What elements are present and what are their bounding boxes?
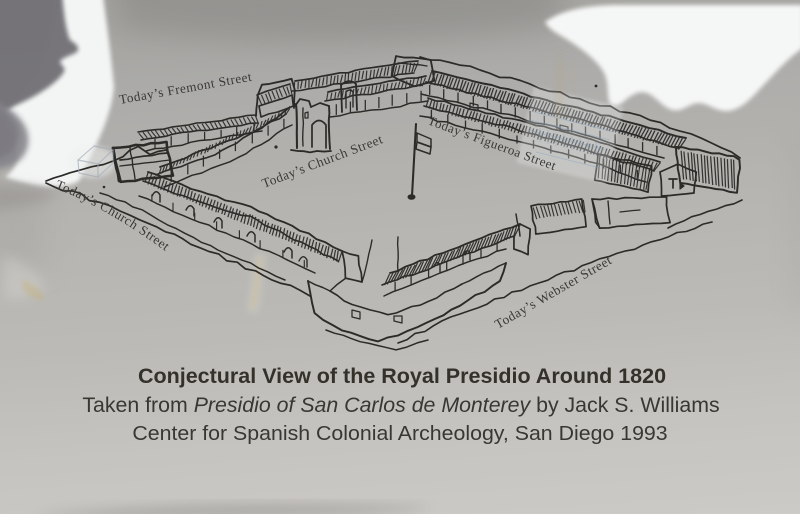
- svg-text:Today’s Church Street: Today’s Church Street: [54, 177, 173, 254]
- svg-text:Today’s Church Street: Today’s Church Street: [260, 131, 385, 191]
- svg-text:Today’s Figueroa Street: Today’s Figueroa Street: [426, 113, 558, 173]
- svg-text:Today’s Fremont Street: Today’s Fremont Street: [118, 69, 253, 107]
- svg-text:Today’s Webster Street: Today’s Webster Street: [492, 252, 614, 331]
